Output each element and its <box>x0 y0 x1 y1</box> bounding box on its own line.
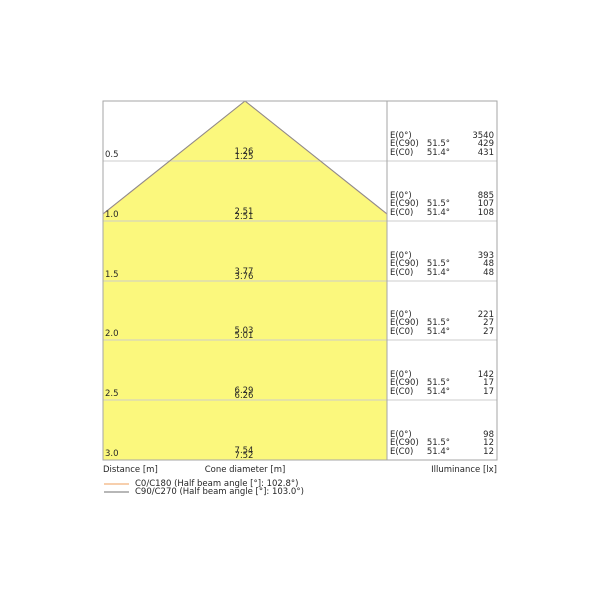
e-value: 431 <box>478 149 494 158</box>
e-angle: 51.4° <box>427 388 450 397</box>
ec0-row: E(C0) 51.4° 48 <box>389 269 495 277</box>
x-axis-label-illuminance: Illuminance [lx] <box>397 465 497 475</box>
distance-label: 0.5 <box>105 150 145 160</box>
cone-diameter-c0-value: 7.52 <box>184 451 304 461</box>
distance-label: 2.0 <box>105 329 145 339</box>
illuminance-block: E(0°) 98 E(C90) 51.5° 12 E(C0) 51.4° 12 <box>389 431 495 456</box>
illuminance-block: E(0°) 142 E(C90) 51.5° 17 E(C0) 51.4° 17 <box>389 371 495 396</box>
cone-diameter-c0-value: 6.26 <box>184 391 304 401</box>
cone-diameter-c0-value: 1.25 <box>184 152 304 162</box>
ec0-row: E(C0) 51.4° 108 <box>389 209 495 217</box>
e-label: E(C0) <box>390 328 413 337</box>
e-value: 17 <box>483 388 494 397</box>
e-label: E(C0) <box>390 149 413 158</box>
e-angle: 51.4° <box>427 448 450 457</box>
cone-diameter-c0-value: 5.01 <box>184 331 304 341</box>
e-angle: 51.4° <box>427 328 450 337</box>
e-value: 27 <box>483 328 494 337</box>
legend-label-c90-c270: C90/C270 (Half beam angle [°]: 103.0°) <box>135 487 304 497</box>
e-label: E(C0) <box>390 269 413 278</box>
ec0-row: E(C0) 51.4° 17 <box>389 388 495 396</box>
cone-diameter-c0-value: 3.76 <box>184 272 304 282</box>
e-angle: 51.4° <box>427 209 450 218</box>
cone-diameter-c0-value: 2.51 <box>184 212 304 222</box>
ec0-row: E(C0) 51.4° 12 <box>389 448 495 456</box>
e-label: E(C0) <box>390 388 413 397</box>
e-angle: 51.4° <box>427 269 450 278</box>
e-value: 108 <box>478 209 494 218</box>
e-label: E(C0) <box>390 448 413 457</box>
ec0-row: E(C0) 51.4° 431 <box>389 149 495 157</box>
plot-area <box>0 0 600 600</box>
illuminance-block: E(0°) 3540 E(C90) 51.5° 429 E(C0) 51.4° … <box>389 132 495 157</box>
e-value: 12 <box>483 448 494 457</box>
illuminance-block: E(0°) 393 E(C90) 51.5° 48 E(C0) 51.4° 48 <box>389 252 495 277</box>
distance-label: 2.5 <box>105 389 145 399</box>
ec0-row: E(C0) 51.4° 27 <box>389 328 495 336</box>
distance-label: 3.0 <box>105 449 145 459</box>
cone-diagram: 0.5 1.26 1.25 E(0°) 3540 E(C90) 51.5° 42… <box>0 0 600 600</box>
illuminance-block: E(0°) 885 E(C90) 51.5° 107 E(C0) 51.4° 1… <box>389 192 495 217</box>
distance-label: 1.5 <box>105 270 145 280</box>
e-value: 48 <box>483 269 494 278</box>
e-angle: 51.4° <box>427 149 450 158</box>
distance-label: 1.0 <box>105 210 145 220</box>
x-axis-label-cone-diameter: Cone diameter [m] <box>145 465 345 475</box>
illuminance-block: E(0°) 221 E(C90) 51.5° 27 E(C0) 51.4° 27 <box>389 311 495 336</box>
e-label: E(C0) <box>390 209 413 218</box>
